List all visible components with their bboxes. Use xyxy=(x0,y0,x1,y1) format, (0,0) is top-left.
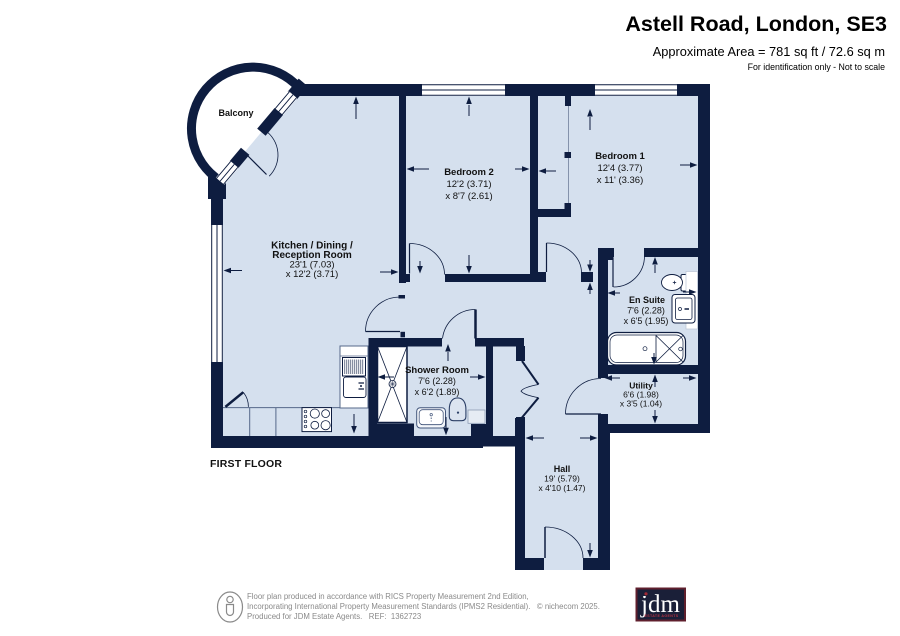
svg-text:x 11' (3.36): x 11' (3.36) xyxy=(597,175,644,186)
svg-text:x 4'10 (1.47): x 4'10 (1.47) xyxy=(539,483,586,493)
svg-text:Bedroom 1: Bedroom 1 xyxy=(595,151,645,162)
svg-text:Hall: Hall xyxy=(554,464,571,474)
svg-text:12'4 (3.77): 12'4 (3.77) xyxy=(597,163,642,174)
svg-text:x 12'2 (3.71): x 12'2 (3.71) xyxy=(286,269,339,280)
svg-text:En Suite: En Suite xyxy=(629,295,665,305)
svg-text:7'6 (2.28): 7'6 (2.28) xyxy=(627,306,665,316)
svg-text:7'6 (2.28): 7'6 (2.28) xyxy=(418,376,456,386)
svg-text:x 6'5 (1.95): x 6'5 (1.95) xyxy=(624,316,669,326)
svg-text:Incorporating International Pr: Incorporating International Property Mea… xyxy=(247,602,600,611)
svg-text:Approximate Area = 781 sq ft /: Approximate Area = 781 sq ft / 72.6 sq m xyxy=(653,44,885,59)
svg-text:Shower Room: Shower Room xyxy=(405,365,469,376)
svg-text:ESTATE AGENTS: ESTATE AGENTS xyxy=(644,614,678,618)
svg-text:x 8'7 (2.61): x 8'7 (2.61) xyxy=(445,191,492,202)
svg-text:Produced for JDM Estate Agents: Produced for JDM Estate Agents. REF: 136… xyxy=(247,612,421,621)
svg-text:Balcony: Balcony xyxy=(218,108,253,118)
svg-text:Bedroom 2: Bedroom 2 xyxy=(444,167,494,178)
svg-text:x 6'2 (1.89): x 6'2 (1.89) xyxy=(415,387,460,397)
svg-text:FIRST FLOOR: FIRST FLOOR xyxy=(210,458,282,470)
svg-text:x 3'5 (1.04): x 3'5 (1.04) xyxy=(620,399,662,409)
svg-text:12'2 (3.71): 12'2 (3.71) xyxy=(446,179,491,190)
svg-text:Astell Road, London, SE3: Astell Road, London, SE3 xyxy=(625,12,887,36)
svg-text:19' (5.79): 19' (5.79) xyxy=(544,474,580,484)
svg-text:For identification only - Not: For identification only - Not to scale xyxy=(748,62,885,72)
svg-text:Floor plan produced in accorda: Floor plan produced in accordance with R… xyxy=(247,592,529,601)
